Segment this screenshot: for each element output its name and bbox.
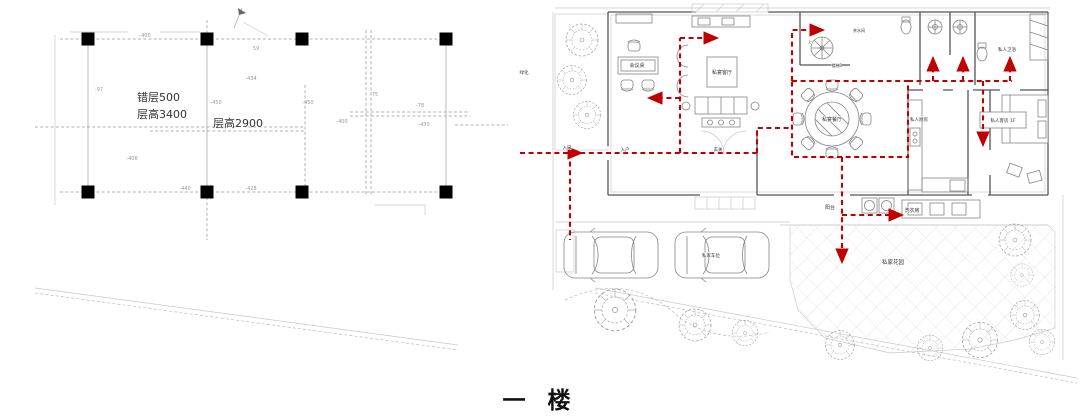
site-boundary	[35, 288, 458, 350]
entry-hall-label: 入户	[621, 146, 630, 153]
entry-label: 入口	[563, 145, 572, 151]
meeting-table-label: 会议桌	[629, 62, 644, 69]
dining-room-label: 私宴餐厅	[822, 116, 842, 123]
dim-label: -428	[245, 186, 256, 192]
pantry-label: 茶水间	[853, 27, 865, 33]
dim-label: -97	[95, 87, 103, 93]
bathroom-fixtures	[901, 17, 987, 61]
dim-label: -400	[139, 33, 150, 39]
floor-title: 一 楼	[0, 381, 1080, 415]
dim-label: -78	[416, 103, 424, 109]
dim-label: -430	[418, 122, 429, 128]
parking-label: 私家车位	[702, 252, 720, 259]
bathroom-label: 私人卫浴	[998, 46, 1016, 53]
greenery-label: 绿化	[520, 69, 529, 76]
planting-strip	[555, 14, 608, 150]
furnished-plan: 会议桌私宴客厅私宴餐厅私人厨房私人卫浴私人客房 1F楼梯1茶水间上阳台洗衣房私家…	[510, 0, 1080, 385]
spiral-stair	[811, 37, 833, 59]
dim-label: -450	[302, 100, 313, 106]
dim-label: -400	[336, 119, 347, 125]
garden-label: 私家花园	[882, 258, 905, 266]
stair-label: 楼梯1	[832, 62, 843, 68]
kitchen-label: 私人厨房	[910, 116, 928, 123]
ceiling-height-label: 层高2900	[213, 116, 263, 130]
floor-plan-sheet: 错层500层高3400层高2900-40059-434-450-97-450-7…	[0, 0, 1080, 419]
laundry-appliances	[695, 197, 1048, 225]
balcony-label: 阳台	[825, 204, 835, 211]
kitchen-counter	[908, 100, 968, 192]
dim-label: -450	[210, 100, 221, 106]
parked-cars	[564, 228, 769, 282]
ceiling-height-label: 层高3400	[137, 107, 187, 121]
north-arrow-icon	[234, 8, 246, 28]
dim-label: -440	[179, 186, 190, 192]
grid-lines	[35, 20, 508, 240]
dim-label: -75	[370, 92, 378, 98]
guest-room-label: 私人客房 1F	[991, 117, 1016, 124]
foyer-label: 玄关	[714, 146, 723, 153]
garden	[565, 224, 1055, 361]
laundry-label: 洗衣房	[904, 207, 919, 214]
dim-label: -434	[245, 76, 256, 82]
dim-label: -406	[126, 156, 137, 162]
stair-up-label: 上	[808, 38, 812, 44]
left-plan-labels: 错层500层高3400层高2900-40059-434-450-97-450-7…	[95, 33, 430, 192]
living-room-label: 私宴客厅	[712, 69, 732, 76]
structural-plan: 错层500层高3400层高2900-40059-434-450-97-450-7…	[0, 0, 510, 385]
split-level-label: 错层500	[137, 90, 180, 104]
dim-label: 59	[253, 46, 259, 52]
